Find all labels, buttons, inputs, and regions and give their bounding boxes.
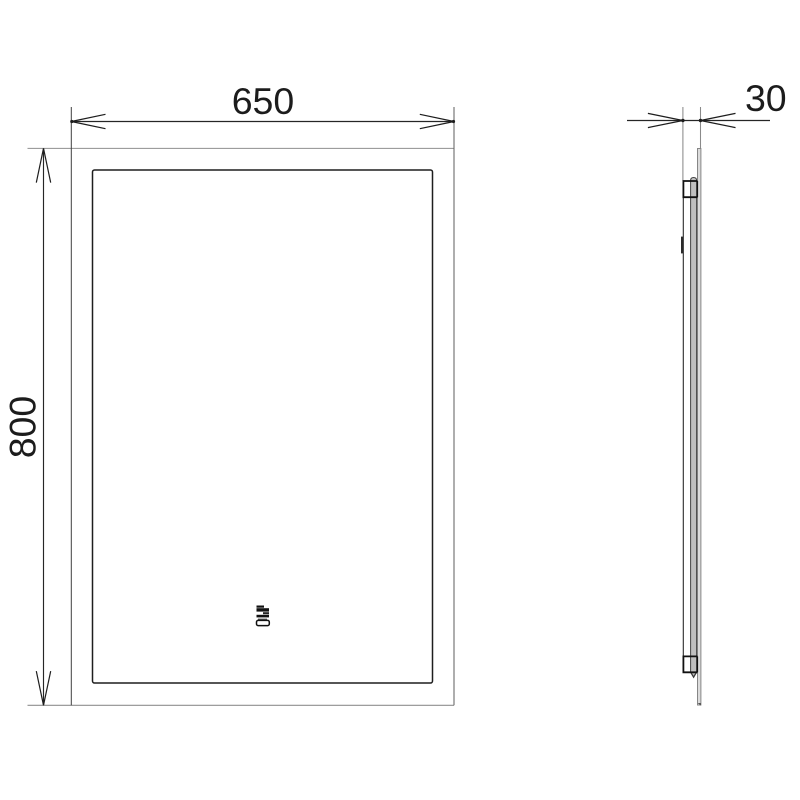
- svg-text:30: 30: [745, 77, 787, 119]
- svg-text:650: 650: [232, 80, 295, 122]
- svg-text:800: 800: [1, 396, 43, 459]
